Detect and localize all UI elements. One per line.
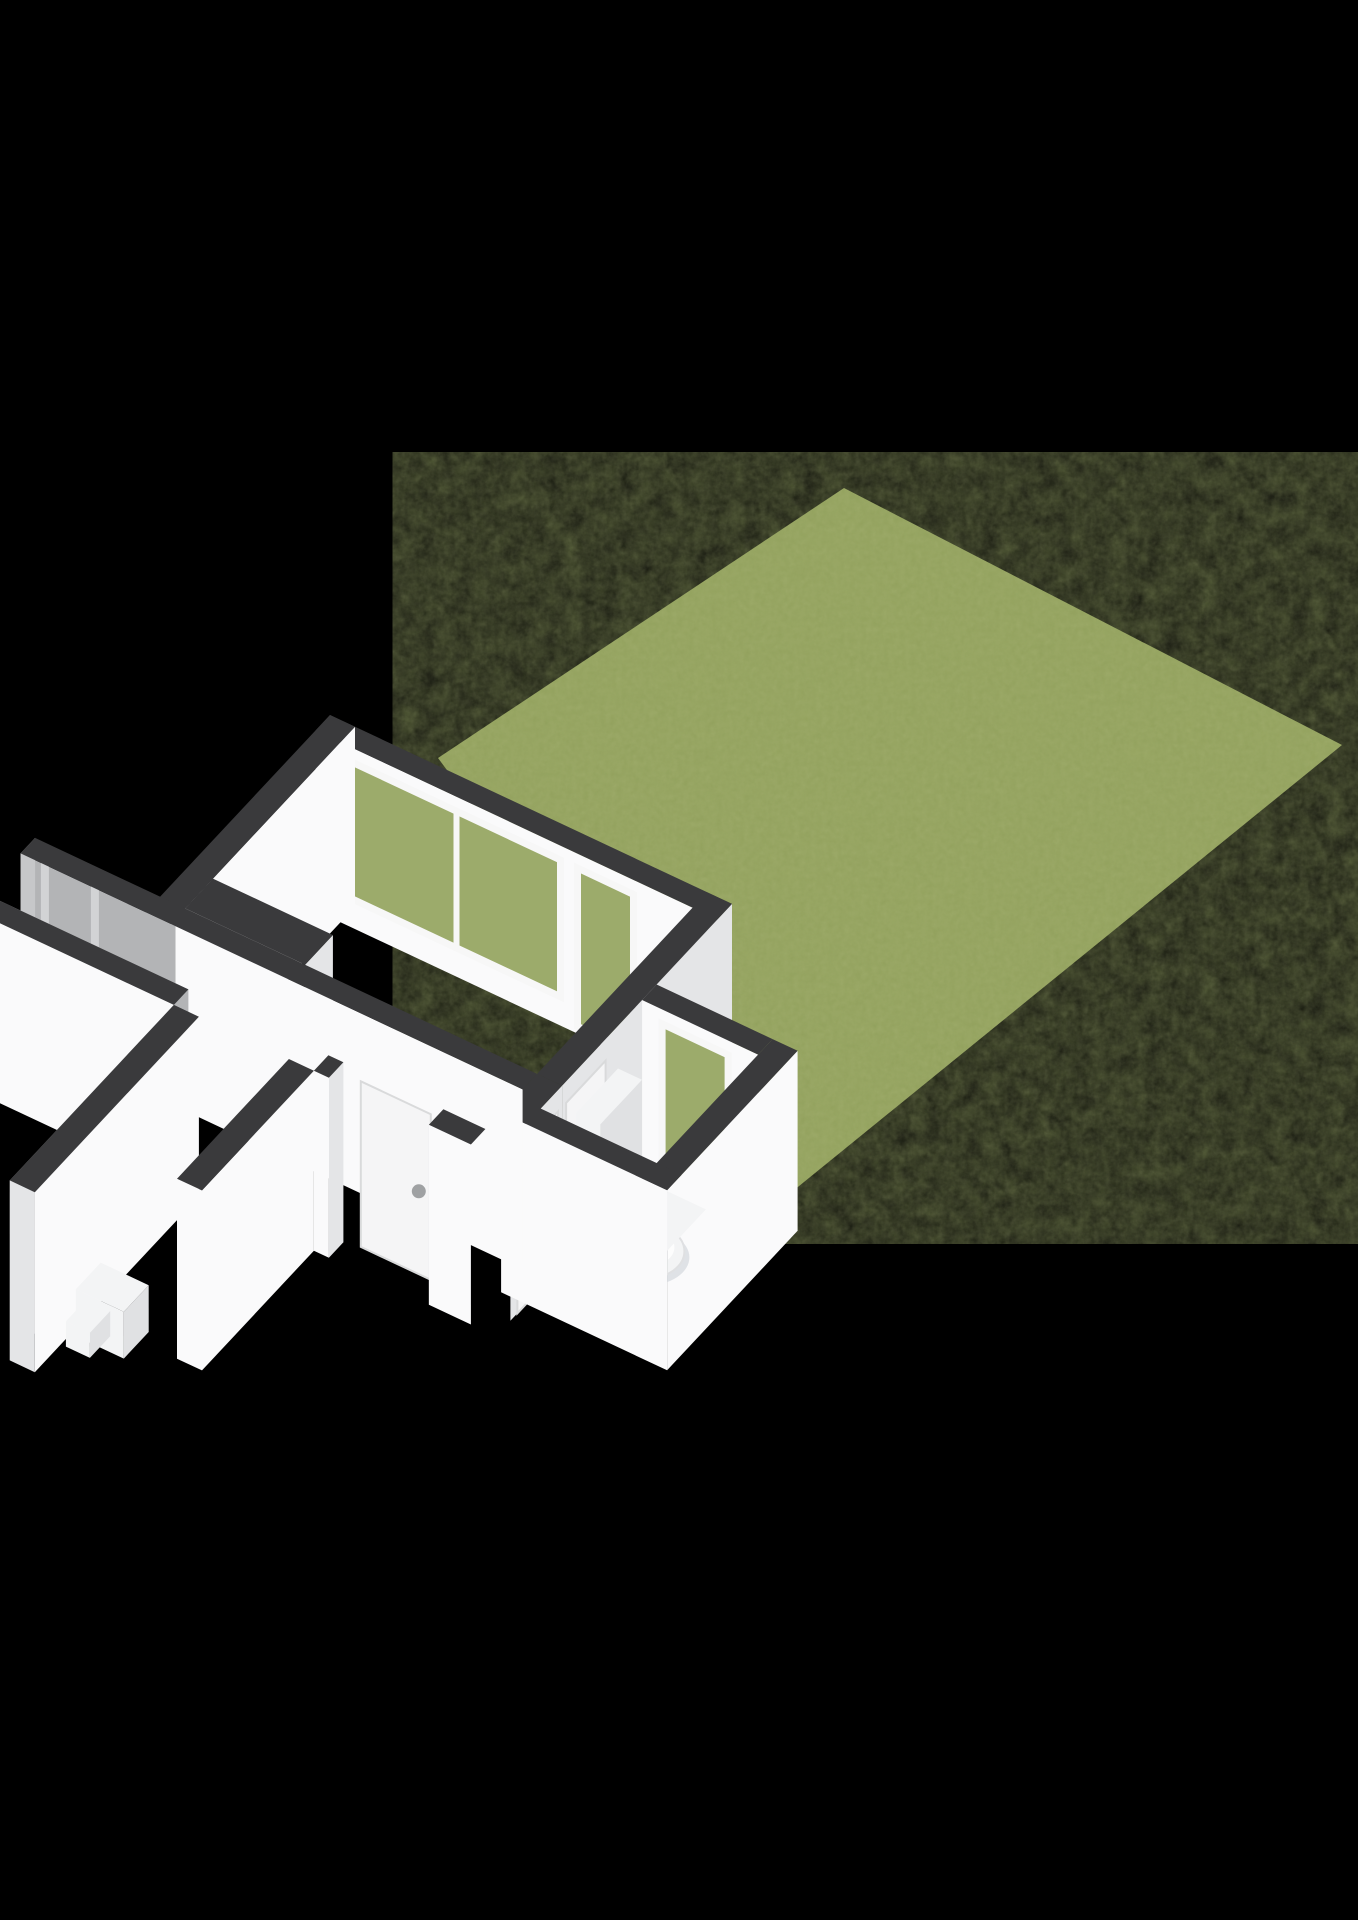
corridor-east-wall-end [177,1179,202,1371]
hall-south-wall-east [429,1125,471,1325]
front-door-handle [412,1184,426,1198]
floorplan-3d-render [0,0,1358,1920]
hall-south-wall-mid [314,1071,329,1258]
front-door [361,1081,431,1280]
floorplan-3d-view [0,0,1358,1920]
corridor-west-wall-end [10,1180,35,1372]
living-room-window-mullion-0 [454,810,460,950]
doorway-jamb-west [329,1062,344,1258]
